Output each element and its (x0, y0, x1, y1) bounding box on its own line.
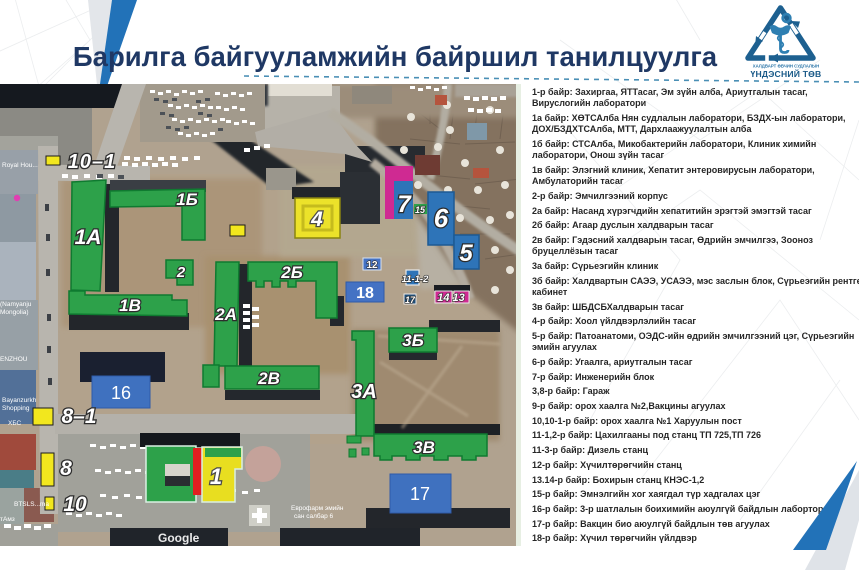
svg-text:12: 12 (366, 260, 378, 271)
svg-text:Еврофарм эмийн: Еврофарм эмийн (291, 504, 344, 512)
svg-text:2А: 2А (214, 305, 237, 324)
svg-text:тАмз: тАмз (0, 516, 15, 523)
svg-text:14 13: 14 13 (437, 292, 465, 304)
svg-text:3А: 3А (351, 381, 377, 403)
svg-text:Royal Hou...: Royal Hou... (2, 162, 38, 169)
svg-text:1В: 1В (119, 296, 141, 315)
svg-text:(Namyanju: (Namyanju (0, 301, 32, 308)
svg-text:7: 7 (397, 191, 412, 218)
svg-text:1: 1 (210, 464, 222, 489)
svg-text:11-1-2: 11-1-2 (402, 274, 429, 285)
svg-text:ХБС: ХБС (8, 420, 22, 427)
svg-text:2Б: 2Б (280, 263, 303, 282)
svg-text:Google: Google (158, 531, 200, 545)
svg-text:10: 10 (63, 493, 87, 516)
svg-text:17: 17 (405, 295, 416, 305)
svg-text:Shopping: Shopping (2, 405, 30, 412)
svg-text:BTSLS...ma: BTSLS...ma (14, 501, 49, 508)
svg-text:6: 6 (434, 203, 449, 233)
svg-text:8: 8 (60, 457, 72, 480)
svg-text:3В: 3В (413, 438, 435, 457)
svg-text:ENZHOU: ENZHOU (0, 356, 28, 363)
svg-text:ҮНДЭСНИЙ ТӨВ: ҮНДЭСНИЙ ТӨВ (751, 68, 822, 79)
svg-text:17: 17 (410, 484, 430, 504)
svg-text:10–1: 10–1 (68, 151, 117, 173)
svg-text:сан салбар 6: сан салбар 6 (294, 512, 334, 520)
svg-text:8–1: 8–1 (61, 405, 96, 428)
svg-text:15: 15 (415, 205, 426, 215)
svg-text:5: 5 (459, 240, 473, 267)
svg-text:Bayanzurkh: Bayanzurkh (2, 397, 37, 404)
svg-text:1Б: 1Б (176, 190, 198, 209)
svg-text:Mongolia): Mongolia) (0, 309, 29, 316)
svg-text:16: 16 (111, 383, 131, 403)
svg-text:1А: 1А (75, 226, 102, 249)
svg-text:2В: 2В (257, 369, 280, 388)
svg-text:18: 18 (356, 285, 374, 302)
svg-text:ХАЛДВАРТ ӨВЧИН СУДЛАЛЫН: ХАЛДВАРТ ӨВЧИН СУДЛАЛЫН (753, 64, 819, 69)
svg-text:3Б: 3Б (402, 331, 424, 350)
svg-text:2: 2 (176, 264, 186, 281)
svg-text:4: 4 (310, 208, 323, 231)
